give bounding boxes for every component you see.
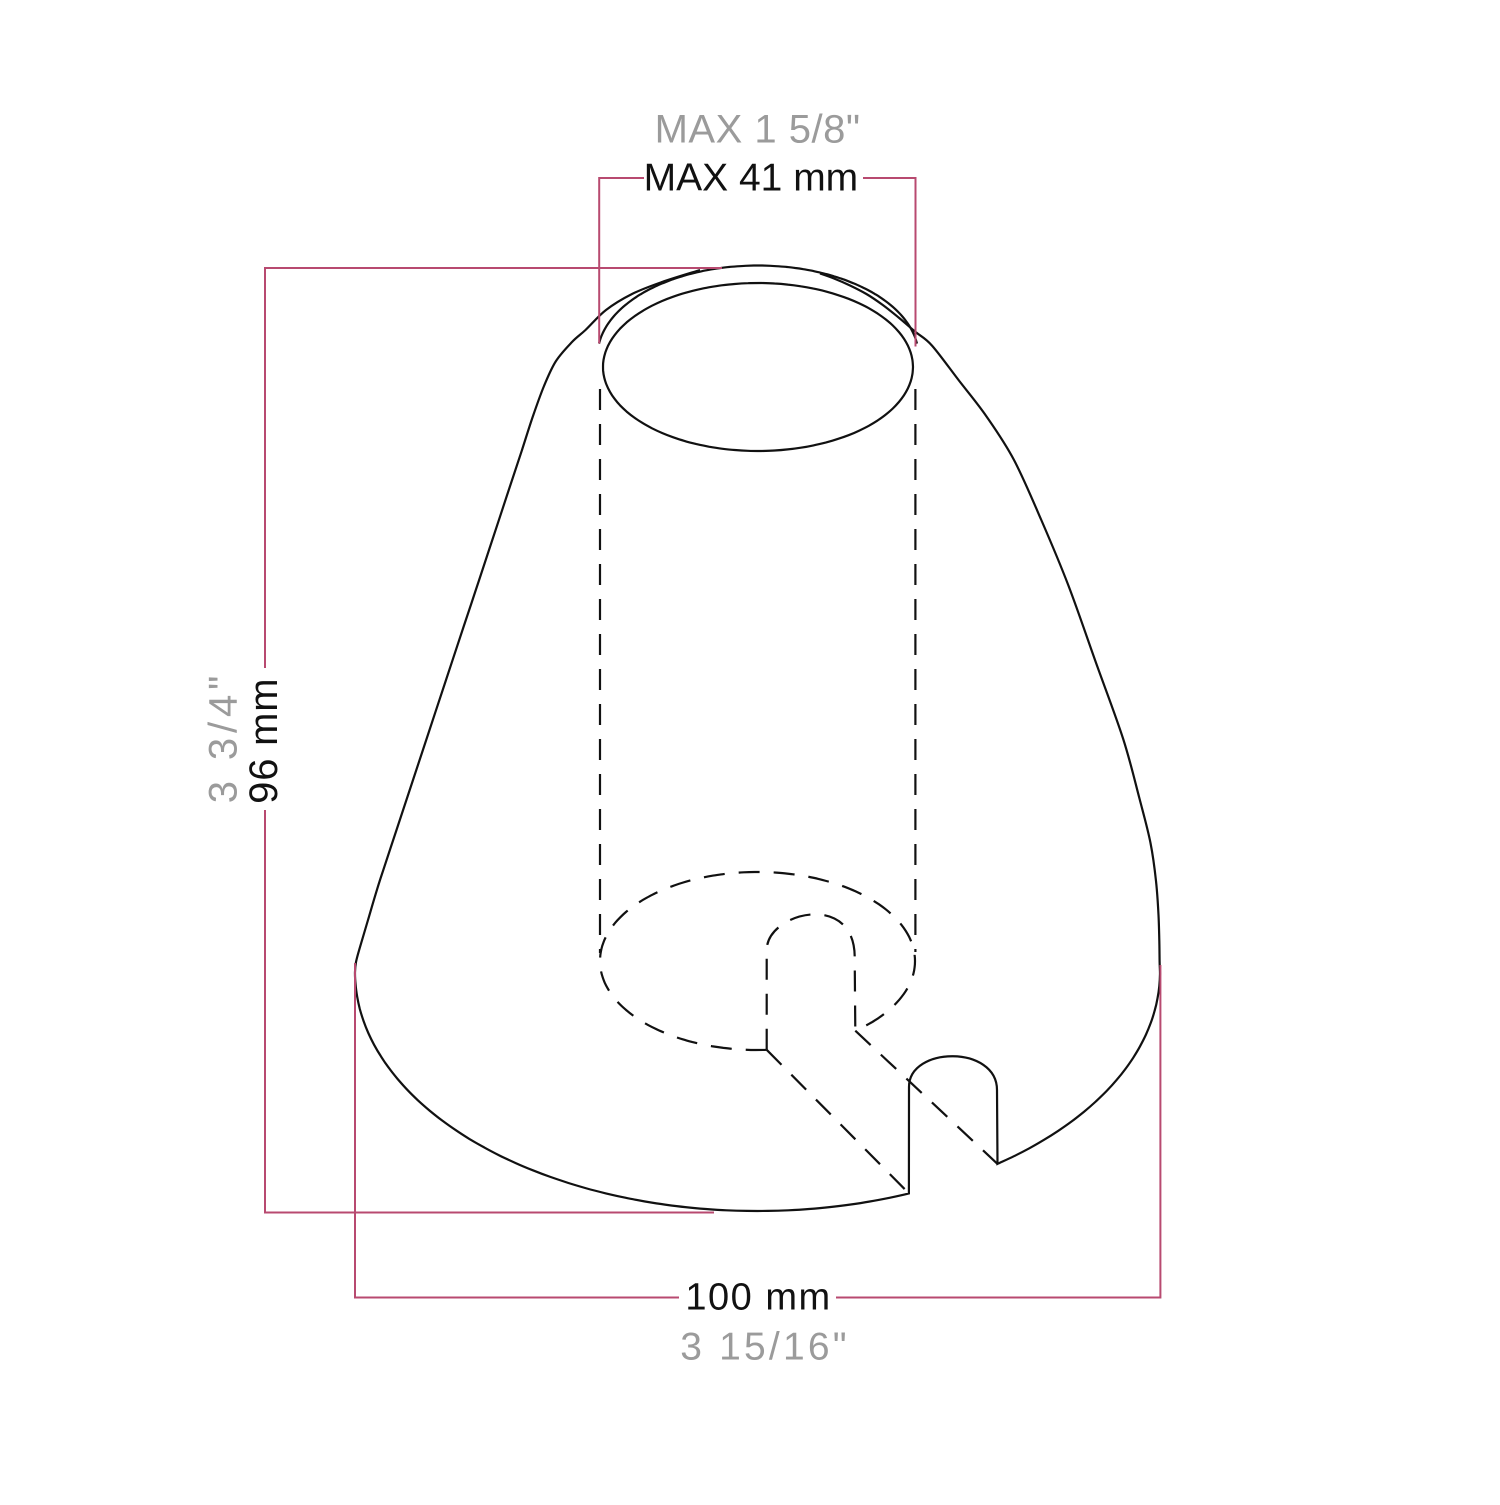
svg-text:MAX 41 mm: MAX 41 mm [644, 156, 859, 199]
svg-text:100 mm: 100 mm [685, 1276, 831, 1318]
svg-text:96 mm: 96 mm [242, 678, 286, 804]
svg-text:MAX 1 5/8": MAX 1 5/8" [655, 108, 861, 152]
svg-text:3 15/16": 3 15/16" [680, 1325, 850, 1368]
svg-text:3 3/4": 3 3/4" [202, 671, 246, 804]
